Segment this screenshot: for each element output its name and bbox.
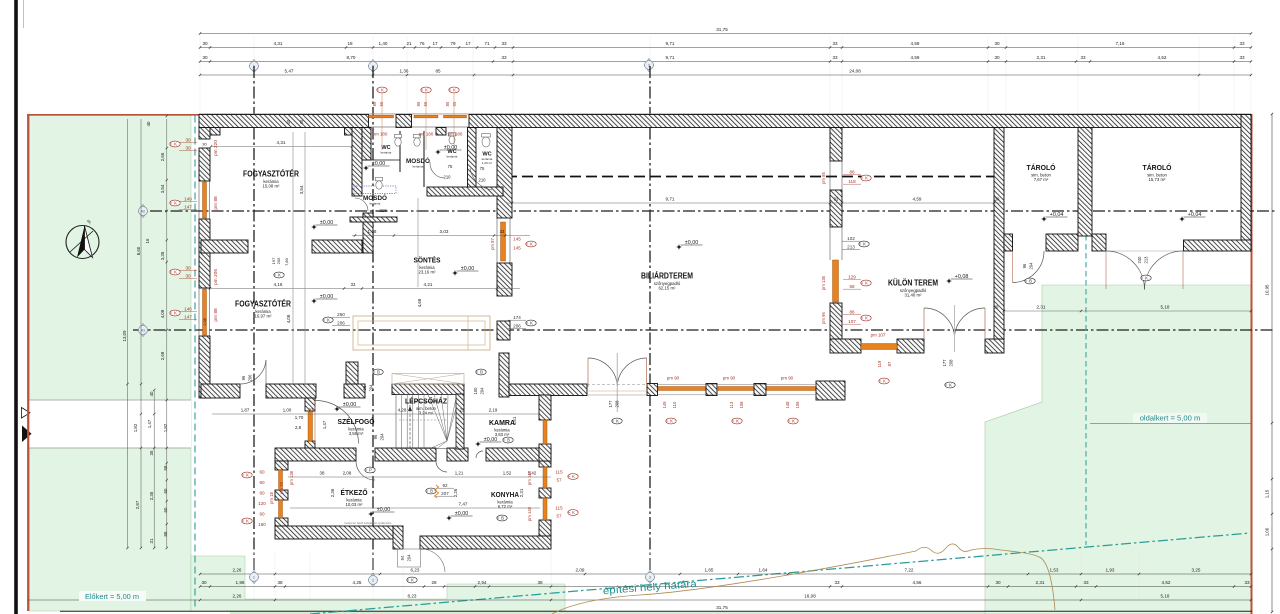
svg-text:2,08: 2,08 [343,471,352,476]
svg-text:pm 180: pm 180 [419,132,434,137]
svg-text:204: 204 [369,384,374,392]
svg-text:K: K [865,316,868,321]
svg-text:96: 96 [362,385,367,390]
svg-text:3,54: 3,54 [160,184,165,193]
svg-text:pm 180: pm 180 [373,132,388,137]
svg-text:SZÉLFOGÓ: SZÉLFOGÓ [338,417,375,426]
svg-text:pm 18: pm 18 [269,492,274,504]
svg-text:55: 55 [423,101,428,106]
svg-text:206: 206 [337,321,345,326]
svg-text:B: B [1029,279,1032,284]
svg-text:K: K [530,242,533,247]
svg-text:K: K [883,379,886,384]
svg-text:8,70: 8,70 [347,55,356,60]
svg-text:2,36: 2,36 [149,491,154,500]
svg-text:85: 85 [372,101,377,106]
svg-text:1,00: 1,00 [1265,527,1270,536]
svg-text:1,47: 1,47 [322,420,327,429]
svg-text:240: 240 [1137,256,1142,264]
svg-text:3,03: 3,03 [440,229,449,234]
svg-text:K: K [865,176,868,181]
svg-text:pm 138: pm 138 [289,470,294,485]
svg-text:6,23: 6,23 [411,568,420,573]
svg-text:204: 204 [480,387,485,395]
svg-text:2,31: 2,31 [1037,55,1046,60]
svg-text:79: 79 [450,41,456,46]
svg-text:113: 113 [729,401,734,408]
svg-text:30: 30 [995,580,1001,585]
svg-text:3,56 m²: 3,56 m² [349,431,364,436]
svg-text:147: 147 [184,315,192,320]
svg-text:76: 76 [419,41,425,46]
svg-text:pm 90: pm 90 [723,376,736,381]
svg-text:B: B [480,370,483,375]
svg-text:5,18: 5,18 [1161,594,1170,599]
svg-text:pm 135: pm 135 [821,275,826,290]
svg-text:pm 96: pm 96 [821,312,826,324]
svg-text:4,56: 4,56 [913,580,922,585]
svg-text:16,08: 16,08 [804,594,816,599]
svg-text:17: 17 [432,41,438,46]
svg-text:94: 94 [400,555,405,560]
svg-text:K: K [174,311,177,316]
svg-text:oldalkert = 5,00 m: oldalkert = 5,00 m [1140,414,1201,423]
svg-text:4,52: 4,52 [1162,580,1171,585]
svg-text:85: 85 [435,69,441,74]
svg-text:1,40: 1,40 [379,41,388,46]
svg-text:K: K [865,281,868,286]
svg-text:33: 33 [834,197,839,202]
svg-text:55: 55 [452,101,457,106]
svg-text:13,09: 13,09 [122,330,127,342]
svg-text:86: 86 [849,310,855,315]
svg-text:kerámia: kerámia [413,165,424,169]
svg-text:33: 33 [1083,580,1089,585]
svg-text:1,65: 1,65 [705,568,714,573]
svg-text:K: K [616,419,619,424]
svg-text:174: 174 [513,315,521,320]
svg-text:K: K [381,88,384,93]
svg-text:23: 23 [460,408,465,413]
svg-text:K: K [246,519,249,524]
svg-text:pm 148: pm 148 [527,506,532,521]
svg-text:B: B [430,489,433,494]
svg-text:B: B [501,516,504,521]
svg-text:33: 33 [1080,55,1086,60]
svg-text:4,08: 4,08 [286,314,291,323]
svg-text:58: 58 [163,465,168,470]
svg-text:B: B [507,438,510,443]
svg-text:33: 33 [1239,55,1245,60]
svg-text:210: 210 [479,178,487,183]
svg-text:K: K [949,383,952,388]
svg-text:208: 208 [949,359,954,367]
svg-text:2,31: 2,31 [1037,305,1046,310]
svg-text:K: K [453,88,456,93]
svg-text:pm 107: pm 107 [871,333,886,338]
svg-text:62,15 m²: 62,15 m² [659,285,677,290]
svg-text:K: K [863,242,866,247]
svg-text:88: 88 [163,531,168,536]
svg-text:30: 30 [185,138,191,143]
svg-text:38: 38 [320,471,325,476]
svg-text:107: 107 [848,319,856,324]
svg-text:145: 145 [513,246,521,251]
svg-text:33: 33 [500,229,505,234]
svg-text:4,31: 4,31 [274,41,283,46]
svg-text:4,31: 4,31 [277,140,286,145]
svg-text:1,08: 1,08 [203,318,207,325]
svg-text:10,03 m²: 10,03 m² [346,502,364,507]
svg-text:1,00: 1,00 [283,408,292,413]
svg-text:118: 118 [848,179,856,184]
svg-text:K: K [670,419,673,424]
svg-text:K: K [278,273,281,278]
svg-text:33: 33 [501,41,507,46]
svg-text:belső tér felőli befalazott ny: belső tér felőli befalazott nyílászáró [345,521,392,525]
svg-text:147: 147 [184,205,192,210]
svg-text:1,64: 1,64 [759,568,768,573]
svg-text:2,8: 2,8 [295,425,302,430]
svg-text:LÉPCSŐHÁZ: LÉPCSŐHÁZ [405,397,448,406]
svg-text:85: 85 [445,101,450,106]
svg-text:213: 213 [847,245,855,250]
svg-text:4,59: 4,59 [911,55,920,60]
svg-text:119: 119 [877,360,882,367]
svg-text:P: P [369,468,372,473]
svg-text:208: 208 [615,400,620,408]
svg-text:Előkert = 5,00 m: Előkert = 5,00 m [85,592,139,601]
svg-text:2,31: 2,31 [1036,580,1045,585]
svg-text:108: 108 [739,401,744,409]
svg-text:K: K [174,142,177,147]
svg-text:5,47: 5,47 [285,69,294,74]
svg-text:146: 146 [184,307,192,312]
svg-text:30: 30 [202,41,208,46]
svg-text:207: 207 [441,491,449,496]
svg-text:1,82: 1,82 [163,423,168,432]
svg-text:30: 30 [185,274,191,279]
svg-text:96: 96 [1022,263,1027,268]
svg-text:33: 33 [832,55,838,60]
svg-text:7,16: 7,16 [1116,41,1125,46]
svg-text:1,47: 1,47 [147,419,152,428]
svg-text:55: 55 [379,101,384,106]
svg-text:3,35: 3,35 [160,251,165,260]
svg-text:pm 90: pm 90 [781,376,794,381]
svg-text:57: 57 [556,478,562,483]
svg-text:3,24 m²: 3,24 m² [419,410,434,415]
svg-text:FOGYASZTÓTÉR: FOGYASZTÓTÉR [235,300,291,309]
svg-text:23,16 m²: 23,16 m² [419,269,437,274]
svg-text:pm 88: pm 88 [213,196,219,210]
svg-text:16: 16 [145,238,150,243]
svg-text:110: 110 [672,401,677,408]
svg-text:2,31: 2,31 [519,488,524,497]
svg-text:1,26 m²: 1,26 m² [482,161,492,165]
svg-text:4,28: 4,28 [398,408,407,413]
svg-text:1,82: 1,82 [133,423,138,432]
svg-text:pm 205: pm 205 [213,269,219,285]
svg-text:2: 2 [372,578,374,582]
svg-text:30: 30 [994,305,999,310]
svg-text:15,73 m²: 15,73 m² [1149,177,1167,182]
svg-text:148: 148 [785,401,790,409]
svg-text:K: K [572,510,575,515]
svg-text:177: 177 [942,359,947,367]
svg-text:2,36: 2,36 [330,488,335,497]
svg-text:4,16: 4,16 [274,282,283,287]
svg-text:1,52: 1,52 [503,471,512,476]
svg-text:60: 60 [259,491,265,496]
svg-text:4,21: 4,21 [424,282,433,287]
svg-text:pm 88: pm 88 [213,308,219,322]
svg-text:204: 204 [380,433,385,441]
svg-text:K: K [572,474,575,479]
svg-text:33: 33 [351,282,356,287]
svg-text:1,18: 1,18 [368,229,377,234]
svg-text:8,60: 8,60 [136,246,141,255]
svg-text:15,08 m²: 15,08 m² [263,183,281,188]
svg-text:2,68: 2,68 [160,351,165,360]
svg-text:33: 33 [1244,580,1250,585]
svg-text:2,26: 2,26 [233,594,242,599]
svg-text:30: 30 [185,146,191,151]
svg-text:1,61: 1,61 [512,416,517,425]
svg-text:K: K [327,318,330,323]
svg-text:149: 149 [662,401,667,409]
svg-text:1,96: 1,96 [236,580,245,585]
svg-text:K: K [411,578,414,583]
svg-text:96: 96 [373,434,378,439]
svg-text:kerámia: kerámia [447,155,458,159]
svg-text:4,68: 4,68 [417,298,422,307]
svg-text:205: 205 [276,257,281,264]
svg-text:K: K [425,88,428,93]
svg-text:24,08: 24,08 [849,69,861,74]
svg-text:30: 30 [994,41,1000,46]
svg-text:33: 33 [1239,41,1245,46]
svg-text:60: 60 [259,470,265,475]
svg-text:180: 180 [258,522,266,527]
svg-text:60: 60 [163,507,168,512]
svg-text:30: 30 [994,55,1000,60]
svg-text:5,18: 5,18 [1161,305,1170,310]
svg-text:K: K [246,473,249,478]
svg-text:pm 78: pm 78 [279,482,284,494]
svg-text:1,70: 1,70 [295,415,304,420]
svg-text:pm 180: pm 180 [448,132,463,137]
svg-text:100: 100 [473,387,478,395]
svg-text:7,47: 7,47 [459,502,468,507]
svg-text:30: 30 [185,266,191,271]
svg-text:kerámia: kerámia [381,151,392,155]
svg-text:KÜLÖN TEREM: KÜLÖN TEREM [888,279,938,288]
svg-text:177: 177 [608,400,613,408]
svg-text:1,53: 1,53 [1050,568,1059,573]
svg-text:96: 96 [241,375,246,380]
svg-text:SÖNTÉS: SÖNTÉS [414,256,441,265]
svg-text:30: 30 [995,197,1000,202]
svg-text:58: 58 [849,284,855,289]
svg-text:1,93: 1,93 [1106,568,1115,573]
svg-text:2,87: 2,87 [135,500,140,509]
svg-text:1,15: 1,15 [1265,489,1270,498]
svg-text:71: 71 [484,41,490,46]
svg-text:115: 115 [555,470,563,475]
svg-text:1,21: 1,21 [455,471,464,476]
svg-text:60: 60 [259,512,265,517]
svg-text:92: 92 [442,483,448,488]
svg-text:K: K [1145,276,1148,281]
svg-text:BILIÁRDTEREM: BILIÁRDTEREM [641,272,693,281]
svg-text:ÉTKEZŐ: ÉTKEZŐ [341,488,368,497]
svg-text:109: 109 [795,401,800,409]
svg-text:10,95: 10,95 [1265,284,1270,296]
svg-text:2,66: 2,66 [160,152,165,161]
svg-text:4,08: 4,08 [160,309,165,318]
svg-text:pm 85: pm 85 [821,172,826,184]
svg-text:7,22: 7,22 [905,568,914,573]
svg-text:31,40 m²: 31,40 m² [905,292,923,297]
svg-text:86: 86 [849,170,855,175]
svg-text:33: 33 [501,55,507,60]
svg-text:8,23: 8,23 [408,594,417,599]
svg-text:129: 129 [848,275,856,280]
svg-text:40: 40 [286,119,291,124]
svg-text:204: 204 [1029,262,1034,270]
svg-text:FOGYASZTÓTÉR: FOGYASZTÓTÉR [243,170,299,179]
svg-text:21: 21 [406,41,412,46]
svg-text:40: 40 [146,121,151,126]
svg-text:33: 33 [834,580,840,585]
svg-text:pm 87: pm 87 [490,238,495,250]
svg-text:206: 206 [513,324,521,329]
svg-text:K: K [174,201,177,206]
svg-text:16,97 m²: 16,97 m² [255,313,273,318]
svg-text:kerámia: kerámia [370,202,381,206]
svg-text:30: 30 [201,580,207,585]
svg-text:2,19: 2,19 [489,408,498,413]
svg-text:218: 218 [379,208,387,213]
svg-text:TÁROLÓ: TÁROLÓ [1027,163,1056,172]
svg-text:57: 57 [556,514,562,519]
svg-text:2,09: 2,09 [576,568,585,573]
svg-text:3,25: 3,25 [1192,568,1201,573]
svg-text:30: 30 [202,55,208,60]
svg-text:115: 115 [555,506,563,511]
svg-text:38: 38 [277,580,283,585]
svg-text:pm 90: pm 90 [667,376,680,381]
svg-text:pm 220: pm 220 [213,140,219,156]
svg-text:2,94: 2,94 [478,580,487,585]
svg-text:pm 148: pm 148 [527,470,532,485]
svg-text:31,75: 31,75 [716,605,728,610]
svg-text:B: B [377,370,380,375]
svg-text:K: K [792,419,795,424]
svg-text:2,26: 2,26 [453,488,458,497]
svg-text:17: 17 [465,41,471,46]
svg-text:9,71: 9,71 [666,55,675,60]
svg-text:A2: A2 [141,209,145,213]
svg-text:87: 87 [887,361,892,366]
svg-text:206: 206 [248,374,253,382]
svg-text:31: 31 [149,538,154,543]
svg-text:3: 3 [649,575,651,579]
svg-text:40: 40 [299,119,304,124]
svg-text:149: 149 [184,197,192,202]
svg-text:1,36: 1,36 [400,69,409,74]
svg-text:35: 35 [149,450,154,455]
svg-text:KONYHA: KONYHA [491,490,519,499]
svg-text:60: 60 [163,488,168,493]
svg-text:K: K [530,321,533,326]
svg-text:18: 18 [347,41,353,46]
svg-text:TÁROLÓ: TÁROLÓ [1143,163,1172,172]
svg-text:145: 145 [513,237,521,242]
svg-text:75: 75 [448,164,453,169]
svg-text:60: 60 [259,480,265,485]
svg-text:28: 28 [431,580,437,585]
svg-text:204: 204 [407,554,412,562]
svg-text:K: K [174,270,177,275]
svg-text:85: 85 [416,101,421,106]
svg-text:A1: A1 [141,328,145,332]
svg-text:4,52: 4,52 [1158,55,1167,60]
svg-text:23: 23 [309,408,314,413]
svg-text:213: 213 [1144,256,1149,264]
svg-text:1,87: 1,87 [241,408,250,413]
svg-text:9,71: 9,71 [666,41,675,46]
svg-text:9,71: 9,71 [666,197,675,202]
svg-text:1: 1 [253,575,255,579]
svg-text:102: 102 [847,236,855,241]
svg-text:4,59: 4,59 [911,41,920,46]
svg-text:33: 33 [832,41,838,46]
svg-text:7,80: 7,80 [284,257,289,266]
svg-text:210: 210 [444,175,452,180]
svg-text:2,26: 2,26 [233,568,242,573]
svg-text:38: 38 [537,580,543,585]
svg-text:4,25: 4,25 [353,580,362,585]
svg-text:120: 120 [258,501,266,506]
svg-text:40: 40 [149,391,154,396]
svg-text:31,75: 31,75 [716,27,728,32]
svg-text:7,67 m²: 7,67 m² [1034,177,1049,182]
svg-text:4,59: 4,59 [913,197,922,202]
svg-text:30: 30 [202,142,207,147]
svg-text:75: 75 [480,166,485,171]
svg-text:3,54: 3,54 [299,185,304,194]
svg-text:K: K [736,419,739,424]
svg-text:260: 260 [337,312,345,317]
